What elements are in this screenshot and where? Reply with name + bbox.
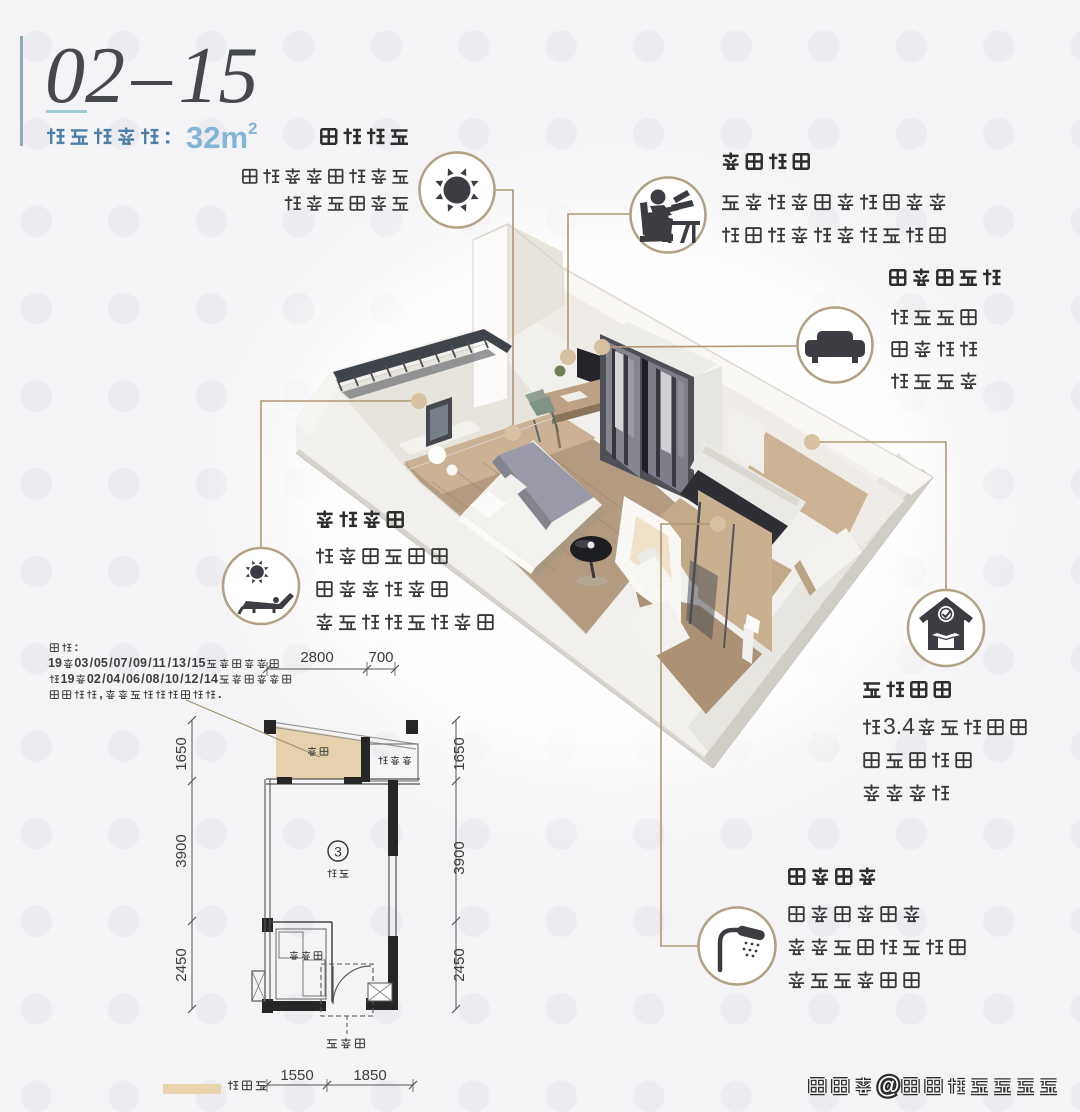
- svg-text:08: 08: [146, 672, 160, 686]
- svg-text:14: 14: [204, 672, 218, 686]
- svg-text:19: 19: [48, 656, 62, 670]
- svg-text:05: 05: [94, 656, 108, 670]
- svg-text:/: /: [122, 672, 126, 686]
- svg-text:@: @: [877, 1072, 899, 1098]
- svg-text::: :: [74, 640, 78, 654]
- svg-text:/: /: [168, 656, 172, 670]
- svg-text:/: /: [141, 672, 145, 686]
- svg-text:04: 04: [106, 672, 120, 686]
- svg-text:07: 07: [114, 656, 128, 670]
- svg-text:03: 03: [74, 656, 88, 670]
- svg-text:2800: 2800: [300, 649, 333, 666]
- svg-text:12: 12: [185, 672, 199, 686]
- svg-text:10: 10: [165, 672, 179, 686]
- svg-text:13: 13: [172, 656, 186, 670]
- svg-text:/: /: [180, 672, 184, 686]
- svg-text:19: 19: [61, 672, 75, 686]
- svg-text:3.4: 3.4: [883, 713, 915, 739]
- svg-text:2450: 2450: [451, 948, 468, 981]
- svg-text:/: /: [109, 656, 113, 670]
- svg-text:/: /: [129, 656, 133, 670]
- svg-text:/: /: [161, 672, 165, 686]
- svg-text:1650: 1650: [173, 737, 190, 770]
- svg-text:3900: 3900: [451, 841, 468, 874]
- svg-text:,: ,: [99, 687, 102, 701]
- svg-text:15: 15: [192, 656, 206, 670]
- svg-text:1850: 1850: [353, 1067, 386, 1084]
- svg-text:02: 02: [87, 672, 101, 686]
- svg-text:06: 06: [126, 672, 140, 686]
- svg-text:09: 09: [133, 656, 147, 670]
- svg-text:1650: 1650: [451, 737, 468, 770]
- svg-text:/: /: [148, 656, 152, 670]
- svg-text:3900: 3900: [173, 834, 190, 867]
- svg-text::: :: [164, 122, 172, 148]
- svg-text:3: 3: [334, 844, 342, 860]
- svg-text:.: .: [218, 687, 221, 701]
- svg-text:11: 11: [153, 656, 166, 670]
- svg-text:2: 2: [248, 119, 257, 138]
- svg-text:1550: 1550: [280, 1067, 313, 1084]
- svg-text:32m: 32m: [186, 120, 248, 155]
- svg-text:700: 700: [368, 649, 393, 666]
- svg-text:2450: 2450: [173, 948, 190, 981]
